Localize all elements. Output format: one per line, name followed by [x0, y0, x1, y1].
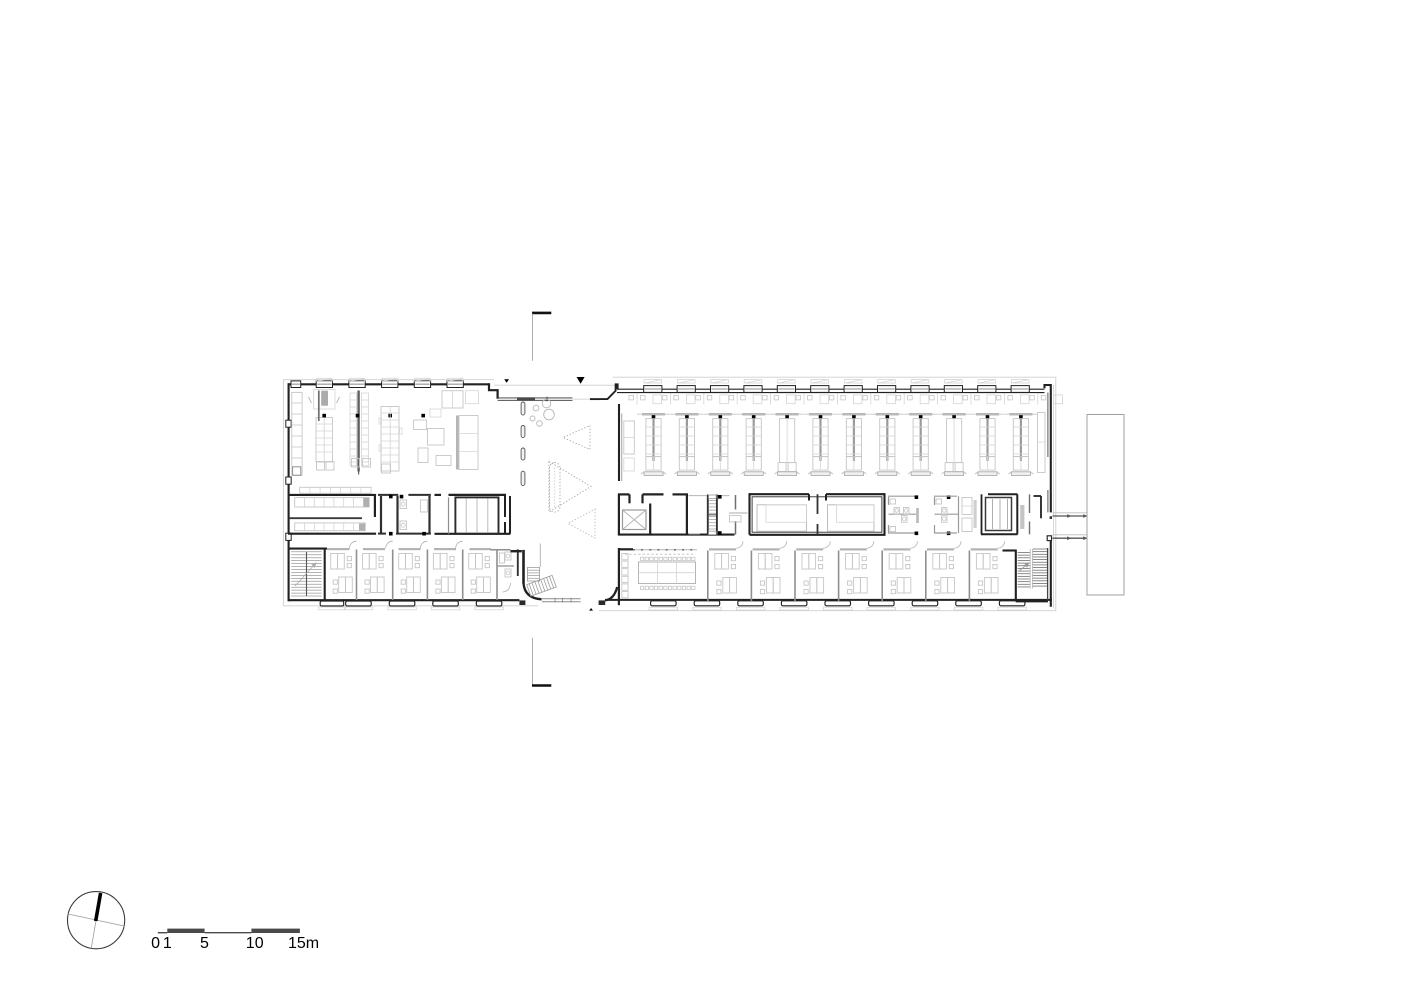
svg-text:1: 1 [163, 935, 172, 952]
svg-text:15m: 15m [288, 935, 319, 952]
svg-text:10: 10 [246, 935, 264, 952]
svg-text:0: 0 [151, 935, 160, 952]
svg-text:5: 5 [200, 935, 209, 952]
